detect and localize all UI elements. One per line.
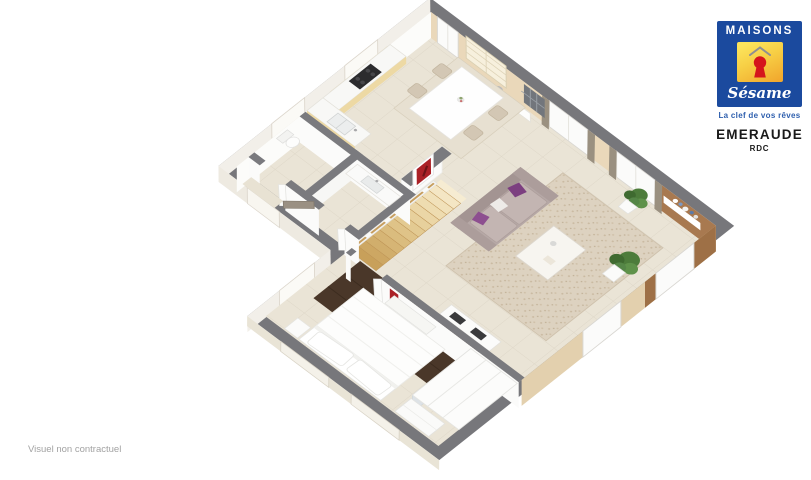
house [125,0,741,474]
logo-tagline: La clef de vos rêves [717,111,802,120]
roof-icon [750,47,770,55]
disclaimer-text: Visuel non contractuel [28,444,121,455]
page: MAISONS Sésame La clef de vos rêves EMER… [0,0,811,480]
maisons-sesame-logo: MAISONS Sésame [717,21,802,107]
plan-level: RDC [707,144,811,153]
floor-plan-render [0,0,811,480]
logo-text-sesame: Sésame [728,86,792,101]
logo-keyhole-badge [737,42,783,82]
plan-identifier: EMERAUDE RDC [707,128,811,153]
plan-title: EMERAUDE [707,128,811,143]
keyhole-icon [737,42,783,82]
logo-text-maisons: MAISONS [726,26,794,38]
brand-block: MAISONS Sésame La clef de vos rêves [717,21,802,120]
